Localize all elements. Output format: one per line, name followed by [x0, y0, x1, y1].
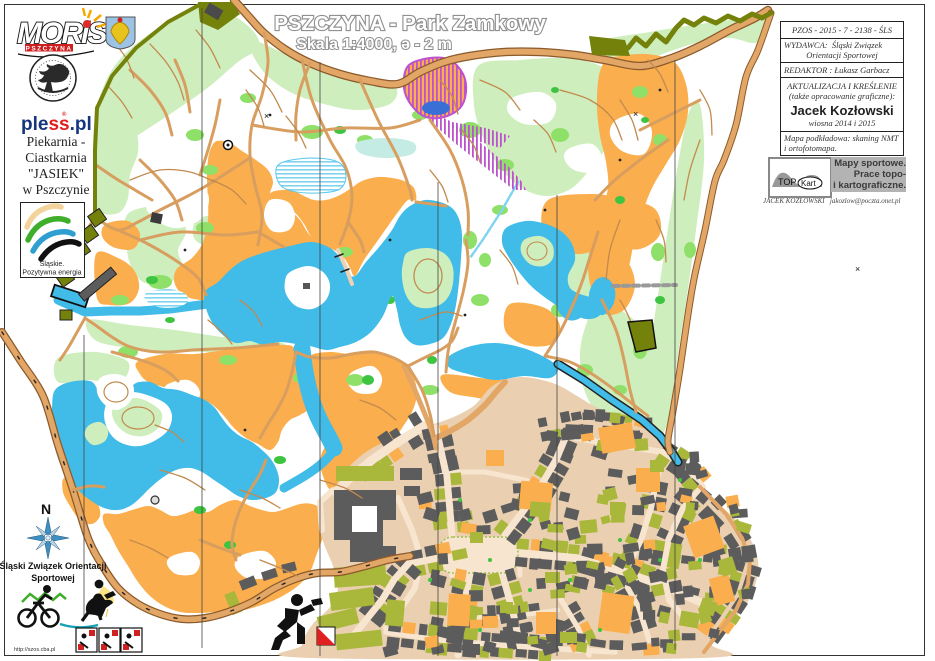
svg-text:pless.pl: pless.pl	[21, 114, 92, 135]
svg-text:TOP: TOP	[778, 177, 796, 187]
svg-text:×: ×	[264, 111, 269, 121]
svg-text:×: ×	[855, 264, 860, 274]
svg-text:Piekarnia -: Piekarnia -	[27, 134, 86, 149]
svg-text:Pozytywna energia: Pozytywna energia	[22, 270, 81, 277]
svg-text:PSZCZYNA: PSZCZYNA	[25, 46, 72, 53]
svg-text:Śląskie.: Śląskie.	[40, 259, 65, 268]
svg-text:N: N	[41, 501, 51, 517]
svg-text:Skala 1:4000, ə - 2 m: Skala 1:4000, ə - 2 m	[296, 36, 452, 53]
svg-text:PSZCZYNA - Park Zamkowy: PSZCZYNA - Park Zamkowy	[274, 12, 546, 35]
svg-text:Sportowej: Sportowej	[31, 573, 75, 583]
svg-text:w Pszczynie: w Pszczynie	[22, 182, 89, 197]
svg-text:"JASIEK": "JASIEK"	[28, 166, 84, 181]
svg-text:×: ×	[633, 109, 638, 119]
svg-text:®: ®	[62, 111, 67, 118]
svg-text:Kart: Kart	[801, 179, 816, 188]
svg-text:http://szos.cba.pl: http://szos.cba.pl	[14, 647, 55, 653]
svg-text:Ciastkarnia: Ciastkarnia	[25, 150, 86, 165]
svg-text:Śląski Związek Orientacji: Śląski Związek Orientacji	[0, 560, 107, 571]
